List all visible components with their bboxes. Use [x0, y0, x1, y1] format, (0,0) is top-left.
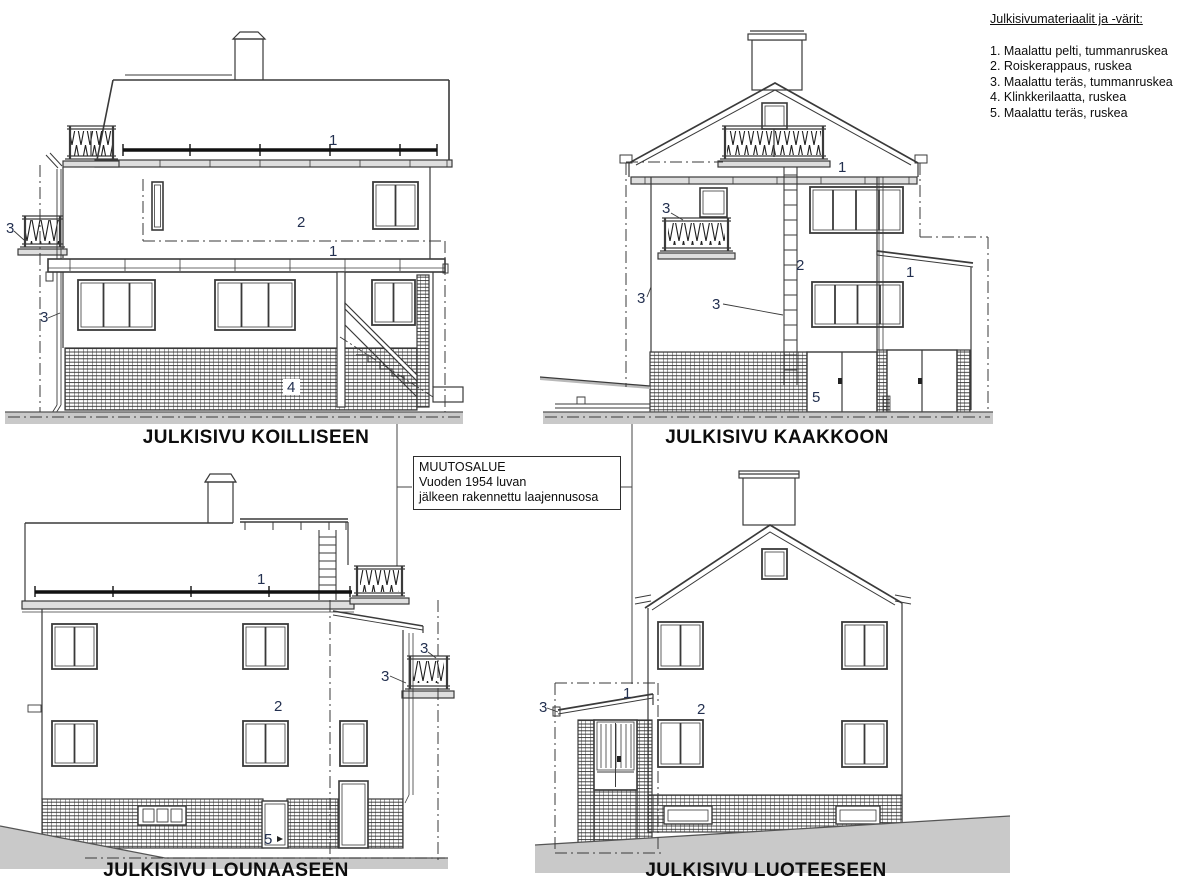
legend-item: 3. Maalattu teräs, tummanruskea: [990, 75, 1200, 91]
change-area-note: MUUTOSALUE Vuoden 1954 luvan jälkeen rak…: [413, 456, 621, 510]
window-3pane-left: [78, 280, 155, 330]
chimney: [748, 31, 806, 90]
elevation-sheet: 1 2 1 3 3 4: [0, 0, 1200, 888]
balcony-left: [658, 188, 735, 259]
window-upper-left: [52, 624, 97, 669]
callout: 4: [287, 379, 295, 396]
balcony-upper-right: [350, 566, 409, 604]
main-roof: [95, 75, 452, 167]
callout: 3: [662, 200, 670, 217]
change-area-note-line: Vuoden 1954 luvan: [419, 475, 615, 490]
roof-ladder: [319, 530, 336, 600]
window-4pane-upper: [810, 187, 903, 233]
title-koilliseen: JULKISIVU KOILLISEEN: [96, 427, 416, 449]
ne-extension-roof: [333, 611, 423, 633]
elevation-luoteeseen-drawing: 3 1 2: [525, 465, 1015, 875]
extension-window: [340, 721, 367, 766]
change-area-note-line: jälkeen rakennettu laajennusosa: [419, 490, 615, 505]
title-luoteeseen: JULKISIVU LUOTEESEEN: [606, 860, 926, 882]
callout: 1: [257, 571, 265, 588]
window-upper-right: [842, 622, 887, 669]
elevation-kaakkoon-drawing: 1 2 3 3 3 5 1: [535, 25, 1015, 425]
elevation-koilliseen-drawing: 1 2 1 3 3 4: [0, 25, 470, 425]
walls: [651, 177, 883, 352]
callout: 2: [297, 214, 305, 231]
window-lower-mid: [243, 721, 288, 766]
clinker-basement: [65, 348, 417, 410]
walls: [28, 609, 413, 803]
balcony-lower-right: [402, 656, 454, 698]
window-lower-right: [842, 721, 887, 767]
callout: 3: [420, 640, 428, 657]
terrain-steps: [540, 377, 650, 412]
snow-guard: [35, 586, 352, 597]
callout: 1: [838, 159, 846, 176]
cellar-hatch-box: [433, 387, 463, 402]
porch-steps: [594, 790, 637, 845]
attic-balcony: [718, 103, 830, 167]
balcony-upper-left: [46, 126, 119, 168]
callout: 2: [274, 698, 282, 715]
balcony-lower-left: [18, 216, 67, 255]
callout: 2: [697, 701, 705, 718]
extension-door: [339, 781, 368, 848]
callout: 3: [712, 296, 720, 313]
title-lounaaseen: JULKISIVU LOUNAASEEN: [66, 860, 386, 882]
eave-belt: [631, 177, 917, 184]
chimney: [739, 471, 799, 525]
porch-door: [594, 720, 637, 790]
basement-garage: [650, 350, 970, 412]
callout: 3: [6, 220, 14, 237]
callout: 1: [623, 685, 631, 702]
porch: [553, 694, 653, 845]
callout: 2: [796, 257, 804, 274]
materials-legend-list: 1. Maalattu pelti, tummanruskea 2. Roisk…: [990, 44, 1200, 122]
upper-window: [373, 182, 418, 229]
callout: 3: [637, 290, 645, 307]
ground: [5, 412, 463, 424]
eave-fascia: [22, 601, 354, 612]
roof: [25, 519, 348, 601]
legend-item: 5. Maalattu teräs, ruskea: [990, 106, 1200, 122]
canopy-roof: [46, 259, 448, 281]
stair-window: [152, 182, 163, 230]
elevation-lounaaseen-drawing: 1 2 3 3 5: [0, 465, 460, 870]
callout: 1: [329, 132, 337, 149]
window-upper-mid: [243, 624, 288, 669]
materials-legend-title: Julkisivumateriaalit ja -värit:: [990, 12, 1200, 28]
upper-wall: [63, 167, 430, 259]
callout: 3: [539, 699, 547, 716]
legend-item: 1. Maalattu pelti, tummanruskea: [990, 44, 1200, 60]
snow-guard: [123, 144, 437, 156]
legend-item: 4. Klinkkerilaatta, ruskea: [990, 90, 1200, 106]
ground: [543, 412, 993, 424]
attic-window: [762, 549, 787, 579]
window-3pane-mid: [215, 280, 295, 330]
callout: 3: [381, 668, 389, 685]
brick-pillar: [417, 275, 429, 407]
chimney: [233, 32, 265, 80]
change-area-note-line: MUUTOSALUE: [419, 460, 615, 475]
gable-roof: [635, 525, 911, 610]
callout: 3: [40, 309, 48, 326]
window-lower-left: [658, 720, 703, 767]
downpipe: [52, 169, 61, 413]
callout: 5: [264, 831, 272, 848]
window-4pane-lower: [812, 282, 903, 327]
callout: 1: [906, 264, 914, 281]
callout: 1: [329, 243, 337, 260]
chimney: [205, 474, 236, 523]
porch-pillar-left: [578, 720, 594, 845]
window-lower-left: [52, 721, 97, 766]
title-kaakkoon: JULKISIVU KAAKKOON: [617, 427, 937, 449]
window-upper-left: [658, 622, 703, 669]
legend-item: 2. Roiskerappaus, ruskea: [990, 59, 1200, 75]
window-2pane-right: [372, 280, 415, 325]
materials-legend: Julkisivumateriaalit ja -värit: 1. Maala…: [990, 12, 1200, 121]
callout: 5: [812, 389, 820, 406]
